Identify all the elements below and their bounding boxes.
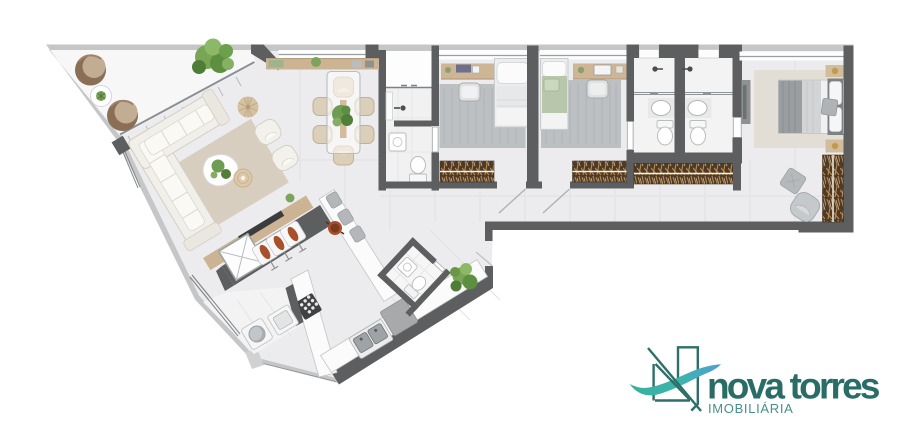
- svg-text:IMOBILIÁRIA: IMOBILIÁRIA: [708, 401, 796, 416]
